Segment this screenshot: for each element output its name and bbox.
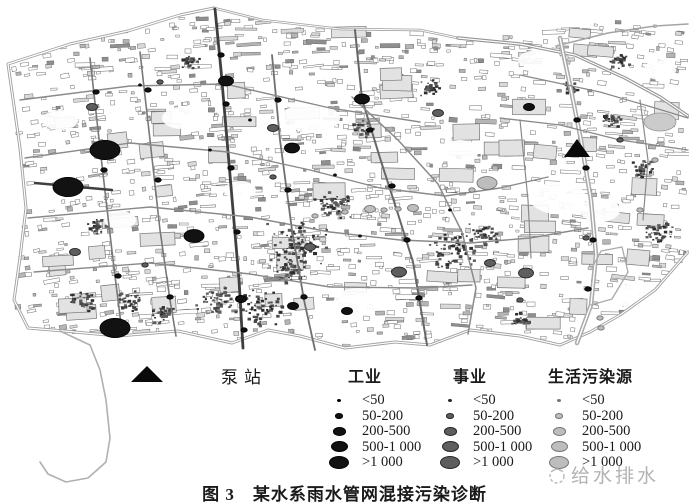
legend-size-label: >1 000 [463,455,514,470]
pollution-source-industry [248,119,251,122]
pollution-source-industry [219,76,234,86]
figure-caption: 图 3 某水系雨水管网混接污染诊断 [0,480,689,503]
pollution-source-industry [184,230,204,243]
pollution-source-industry [367,128,373,132]
pollution-source-industry [285,188,291,192]
pollution-source-domestic [365,205,376,212]
pollution-source-industry [155,178,161,182]
legend-size-label: <50 [352,393,385,408]
pollution-source-industry [416,296,422,300]
legend-header: 工业 [348,363,421,387]
industry-size-symbol [337,399,341,402]
legend-column-industry: 工业 <50 50-200 200-500 500-1 000 >1 000 [326,363,421,470]
legend-size-label: 200-500 [572,424,630,439]
pollution-source-institution [70,248,81,255]
pollution-source-industry [275,98,281,102]
institution-size-symbol [444,427,457,436]
figure-pollution-map: 泵站 工业 <50 50-200 200-500 500-1 000 >1 00… [0,0,689,503]
legend-size-label: 50-200 [572,409,623,424]
pollution-source-institution [270,175,276,179]
legend-size-label: <50 [572,393,605,408]
industry-size-symbol [333,427,346,436]
domestic-size-symbol [555,413,563,419]
pump-station-icon [131,366,163,382]
legend-size-label: 500-1 000 [463,440,532,455]
legend-row: >1 000 [326,455,421,470]
domestic-size-symbol [551,441,568,452]
legend-row: 500-1 000 [546,439,641,454]
pollution-source-domestic [408,204,419,211]
legend-size-label: >1 000 [352,455,403,470]
legend-size-label: 200-500 [352,424,410,439]
legend-column-institution: 事业 <50 50-200 200-500 500-1 000 >1 000 [437,363,532,470]
legend-size-label: <50 [463,393,496,408]
pollution-source-industry [585,287,591,291]
pollution-source-institution [517,298,523,302]
legend-row: 50-200 [437,408,532,423]
pump-station-label: 泵站 [221,363,267,388]
pollution-source-industry [218,53,224,57]
pollution-source-industry [100,318,130,337]
pollution-source-industry [355,94,370,104]
pollution-source-industry [234,230,240,234]
pollution-source-industry [241,328,247,332]
legend-header: 事业 [453,363,532,387]
legend-row: >1 000 [437,455,532,470]
pollution-source-industry [590,238,596,242]
legend-size-label: 200-500 [463,424,521,439]
legend-row: <50 [437,393,532,408]
pollution-source-industry [236,295,247,302]
legend-header: 生活污染源 [548,363,641,387]
legend-column-domestic: 生活污染源 <50 50-200 200-500 500-1 000 >1 00… [546,363,641,470]
pollution-source-industry [223,102,229,106]
pollution-source-industry [448,209,451,212]
pollution-source-institution [485,259,496,266]
pollution-source-domestic [652,158,658,162]
pollution-source-domestic [598,326,604,330]
legend-row: 50-200 [326,408,421,423]
pollution-source-industry [358,235,361,238]
pollution-source-industry [228,166,234,170]
pollution-source-industry [389,184,395,188]
pollution-source-industry [301,295,307,299]
pollution-source-industry [285,143,300,153]
pollution-source-institution [519,268,534,278]
pollution-source-institution [433,109,444,116]
institution-size-symbol [440,456,460,469]
institution-size-symbol [448,399,452,402]
pollution-source-industry [333,174,336,177]
pollution-source-institution [305,243,316,250]
pollution-source-industry [342,307,353,314]
institution-size-symbol [442,441,459,452]
pollution-source-industry [53,177,83,196]
pollution-source-industry [115,274,121,278]
industry-size-symbol [331,441,348,452]
pollution-source-domestic [312,214,318,218]
legend-row: 500-1 000 [437,439,532,454]
legend-size-label: 500-1 000 [572,440,641,455]
legend-size-label: 50-200 [463,409,514,424]
pollution-source-institution [142,263,148,267]
legend-row: 200-500 [546,424,641,439]
pollution-source-industry [93,90,99,94]
pollution-source-industry [90,140,120,159]
legend-size-label: 50-200 [352,409,403,424]
pollution-source-institution [583,236,589,240]
industry-size-symbol [335,413,343,419]
pollution-source-domestic [381,208,387,212]
pollution-source-industry [583,166,589,170]
pollution-source-industry [288,302,299,309]
pollution-source-domestic [637,208,643,212]
domestic-size-symbol [557,399,561,402]
pollution-source-institution [157,80,163,84]
legend-size-label: 500-1 000 [352,440,421,455]
pollution-source-industry [298,227,301,230]
legend-row: 50-200 [546,408,641,423]
legend-row: 200-500 [437,424,532,439]
legend-row: 200-500 [326,424,421,439]
legend-row: <50 [546,393,641,408]
institution-size-symbol [446,413,454,419]
pollution-source-institution [268,124,279,131]
pollution-source-industry [167,295,173,299]
pollution-source-industry [138,84,141,87]
pollution-source-domestic [395,207,401,211]
pollution-source-industry [574,118,580,122]
legend-row: <50 [326,393,421,408]
pollution-source-institution [617,138,623,142]
domestic-size-symbol [553,427,566,436]
pollution-source-institution [87,103,98,110]
industry-size-symbol [329,456,349,469]
pollution-source-domestic [597,316,603,320]
pollution-source-industry [208,149,211,152]
pollution-source-domestic [469,188,475,192]
pollution-source-domestic [477,177,497,190]
pollution-source-industry [101,168,107,172]
pollution-source-industry [524,103,535,110]
legend-row: 500-1 000 [326,439,421,454]
pollution-source-domestic [342,210,348,214]
pollution-source-institution [392,267,407,277]
pollution-source-industry [145,88,151,92]
pollution-source-industry [404,238,410,242]
